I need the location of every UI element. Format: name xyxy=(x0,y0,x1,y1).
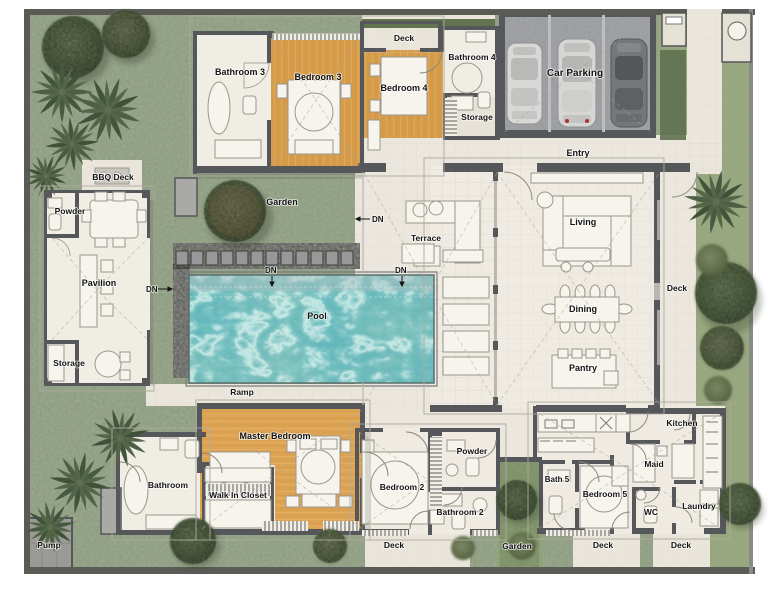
svg-text:Powder: Powder xyxy=(457,446,488,456)
svg-text:Deck: Deck xyxy=(394,33,415,43)
svg-text:DN: DN xyxy=(265,266,277,275)
svg-text:Living: Living xyxy=(570,217,597,227)
svg-text:Deck: Deck xyxy=(667,283,688,293)
svg-text:Entry: Entry xyxy=(566,148,589,158)
svg-text:Bedroom 2: Bedroom 2 xyxy=(380,482,425,492)
svg-text:Bedroom 5: Bedroom 5 xyxy=(583,489,628,499)
svg-text:DN: DN xyxy=(372,215,384,224)
svg-text:Laundry: Laundry xyxy=(682,501,716,511)
svg-text:Bathroom 4: Bathroom 4 xyxy=(448,52,496,62)
svg-text:BBQ Deck: BBQ Deck xyxy=(92,172,134,182)
svg-text:Pump: Pump xyxy=(37,540,61,550)
svg-text:DN: DN xyxy=(395,266,407,275)
svg-text:Bathroom 2: Bathroom 2 xyxy=(436,507,484,517)
svg-text:Garden: Garden xyxy=(502,541,532,551)
svg-text:Ramp: Ramp xyxy=(230,387,254,397)
svg-text:Bath 5: Bath 5 xyxy=(545,475,570,484)
svg-text:Bedroom 4: Bedroom 4 xyxy=(380,83,427,93)
svg-text:Deck: Deck xyxy=(593,540,614,550)
svg-text:Pavilion: Pavilion xyxy=(82,278,117,288)
svg-text:Master Bedroom: Master Bedroom xyxy=(239,431,310,441)
svg-text:Bathroom 3: Bathroom 3 xyxy=(215,67,265,77)
svg-text:Walk In Closet: Walk In Closet xyxy=(209,490,267,500)
svg-text:DN: DN xyxy=(146,285,158,294)
svg-text:Bathroom: Bathroom xyxy=(148,480,189,490)
svg-text:Pantry: Pantry xyxy=(569,363,597,373)
svg-text:Maid: Maid xyxy=(644,459,663,469)
svg-text:Garden: Garden xyxy=(266,197,298,207)
svg-text:Deck: Deck xyxy=(384,540,405,550)
svg-text:Pool: Pool xyxy=(307,311,327,321)
svg-text:Powder: Powder xyxy=(55,206,86,216)
svg-text:Storage: Storage xyxy=(53,358,85,368)
svg-text:Car Parking: Car Parking xyxy=(547,68,603,79)
svg-text:Terrace: Terrace xyxy=(411,233,441,243)
svg-text:Bedroom 3: Bedroom 3 xyxy=(294,72,341,82)
svg-text:Deck: Deck xyxy=(671,540,692,550)
svg-text:WC: WC xyxy=(644,507,658,517)
svg-text:Kitchen: Kitchen xyxy=(666,418,697,428)
svg-text:Dining: Dining xyxy=(569,304,597,314)
svg-text:Storage: Storage xyxy=(461,112,493,122)
